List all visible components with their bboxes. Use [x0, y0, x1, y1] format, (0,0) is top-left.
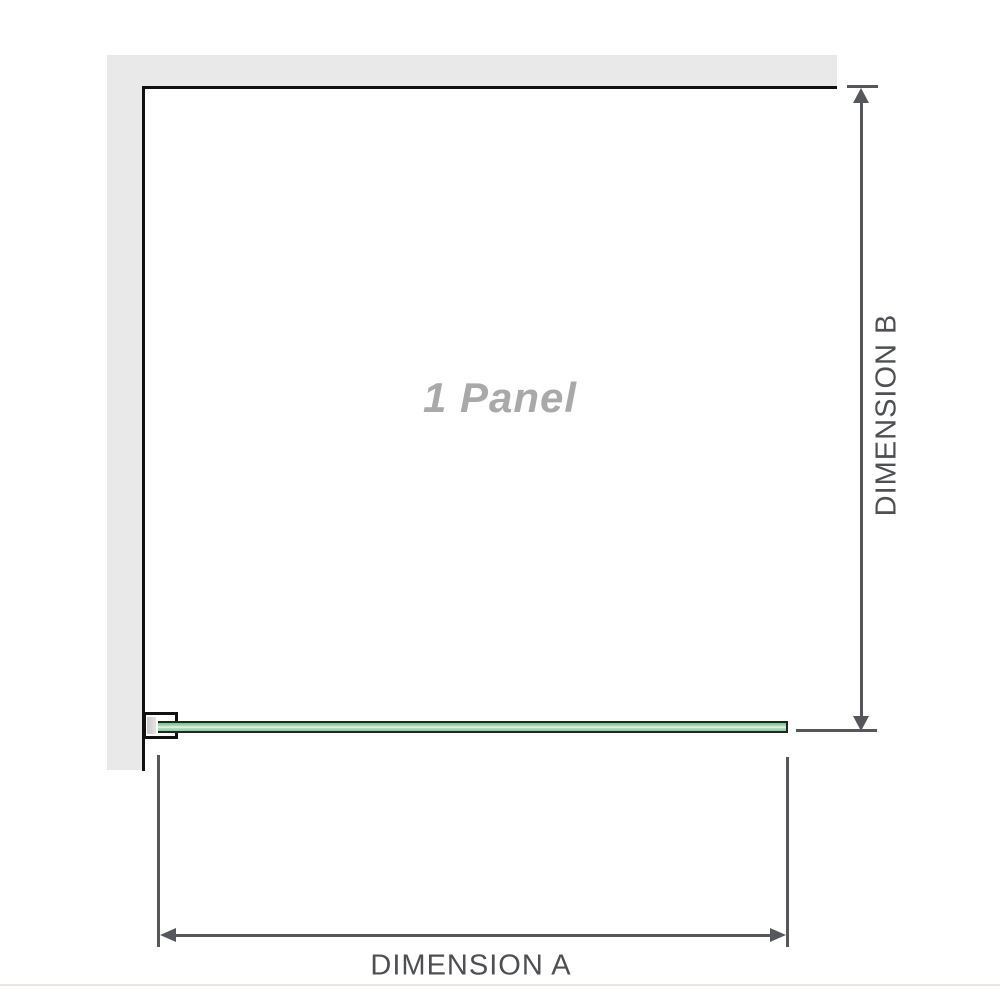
enclosure-area: [142, 86, 837, 771]
wall-vertical-section: [107, 55, 142, 770]
panel-count-label: 1 Panel: [423, 374, 577, 422]
dimension-a-left-extension-line: [157, 755, 160, 947]
arrow-left-icon: [160, 928, 176, 942]
dimension-a-right-extension-line: [786, 757, 789, 947]
arrow-right-icon: [770, 928, 786, 942]
dimension-b-label: DIMENSION B: [871, 314, 904, 517]
wall-horizontal-section: [107, 55, 837, 86]
dimension-a-line: [172, 934, 776, 937]
dimension-b-line: [860, 96, 863, 720]
glass-panel: [158, 721, 788, 733]
baseline-rule: [0, 984, 1000, 986]
wall-clamp-pad: [147, 717, 156, 734]
diagram-canvas: 1 Panel DIMENSION B DIMENSION A: [0, 0, 1000, 1000]
arrow-down-icon: [853, 716, 869, 731]
dimension-a-label: DIMENSION A: [370, 950, 571, 983]
arrow-up-icon: [853, 88, 869, 103]
